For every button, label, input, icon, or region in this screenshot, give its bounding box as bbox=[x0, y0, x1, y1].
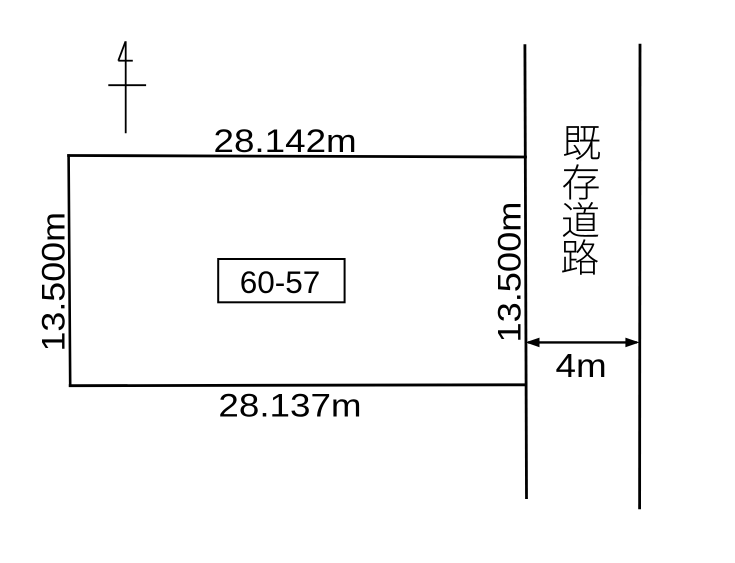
svg-text:28.137m: 28.137m bbox=[218, 386, 361, 423]
svg-text:13.500m: 13.500m bbox=[36, 212, 72, 351]
svg-text:13.500m: 13.500m bbox=[492, 202, 528, 343]
svg-text:4m: 4m bbox=[556, 347, 607, 384]
svg-text:60-57: 60-57 bbox=[240, 264, 321, 300]
svg-text:28.142m: 28.142m bbox=[214, 123, 357, 159]
